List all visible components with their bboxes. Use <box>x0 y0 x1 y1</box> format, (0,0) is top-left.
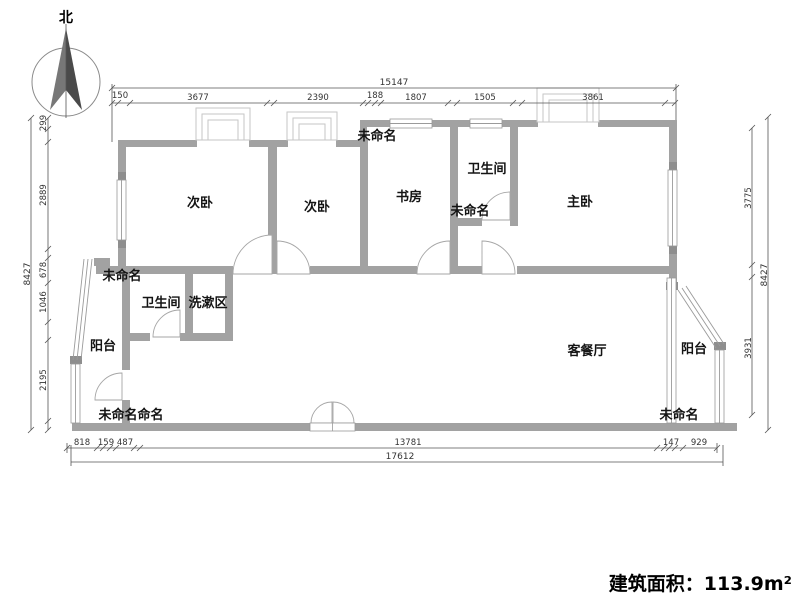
label-living-dining: 客餐厅 <box>567 343 606 359</box>
window-bathroom-top <box>470 119 502 128</box>
dim-top-1: 3677 <box>187 93 209 103</box>
building-area-title: 建筑面积：113.9m² <box>609 569 792 596</box>
window-study-top <box>390 119 432 128</box>
window-living-balcony <box>667 278 676 423</box>
door-bedroom-mid <box>277 241 310 274</box>
dim-left-4: 2195 <box>39 369 49 391</box>
label-unnamed-bottom-left: 未命名命名 <box>97 407 163 423</box>
north-arrow-left <box>50 28 66 110</box>
dim-right-total: 8427 <box>760 264 770 287</box>
dim-bottom-0: 818 <box>74 438 90 448</box>
label-unnamed-bottom-right: 未命名 <box>658 407 698 423</box>
dim-top-5: 1505 <box>474 93 496 103</box>
compass: 北 <box>32 10 100 118</box>
bay-window-bedroom-left <box>196 108 250 148</box>
label-balcony-right: 阳台 <box>681 341 707 357</box>
dim-top-4: 1807 <box>405 93 427 103</box>
north-arrow-right <box>66 28 82 110</box>
dim-left-1: 2889 <box>39 184 49 206</box>
dim-left-3: 1046 <box>39 291 49 313</box>
window-balcony-left <box>71 259 92 423</box>
door-study <box>417 241 450 274</box>
compass-north-label: 北 <box>59 10 73 26</box>
label-study: 书房 <box>396 189 422 205</box>
label-bedroom-left: 次卧 <box>187 195 213 211</box>
dim-right-0: 3775 <box>744 187 754 209</box>
dim-bottom-2: 487 <box>117 438 133 448</box>
door-bedroom-left <box>233 235 272 274</box>
dim-left-0: 299 <box>39 115 49 131</box>
label-balcony-left: 阳台 <box>90 338 116 354</box>
windows <box>71 88 724 423</box>
bay-window-bedroom-mid <box>287 112 337 148</box>
dim-bottom-5: 929 <box>691 438 707 448</box>
dim-bottom-3: 13781 <box>394 438 421 448</box>
dim-left-total: 8427 <box>23 263 33 286</box>
dim-top-0: 150 <box>112 91 128 101</box>
dim-top-2: 2390 <box>307 93 329 103</box>
door-balcony-left <box>95 373 122 400</box>
label-unnamed-center: 未命名 <box>449 203 489 219</box>
door-master-bedroom <box>482 241 515 274</box>
dim-top-6: 3861 <box>582 93 604 103</box>
dim-left-2: 678 <box>39 262 49 278</box>
floor-plan-page: 北 <box>0 0 800 600</box>
walls <box>70 120 737 431</box>
building-area-text: 建筑面积：113.9m² <box>609 573 792 595</box>
room-labels: 次卧 次卧 书房 卫生间 主卧 客餐厅 卫生间 洗漱区 阳台 阳台 未命名 未命… <box>90 128 707 423</box>
window-master-right-wall <box>668 170 677 246</box>
dim-bottom-4: 147 <box>663 438 679 448</box>
dim-top-total: 15147 <box>380 78 409 88</box>
dim-bottom-1: 159 <box>98 438 114 448</box>
entry-double-door <box>310 402 355 431</box>
label-bedroom-mid: 次卧 <box>304 199 330 215</box>
label-unnamed-left: 未命名 <box>101 268 141 284</box>
window-bedroom-left-wall <box>117 180 126 240</box>
dim-right-1: 3931 <box>744 337 754 359</box>
label-master-bedroom: 主卧 <box>567 194 593 210</box>
dim-bottom-total: 17612 <box>386 452 415 462</box>
label-bathroom-top: 卫生间 <box>467 161 506 177</box>
label-bathroom-left: 卫生间 <box>141 295 180 311</box>
floor-plan-drawing: 北 <box>0 0 800 600</box>
door-bathroom-left <box>153 310 180 337</box>
dim-top-3: 188 <box>367 91 383 101</box>
label-washing-area: 洗漱区 <box>188 295 227 311</box>
label-unnamed-top: 未命名 <box>356 128 396 144</box>
